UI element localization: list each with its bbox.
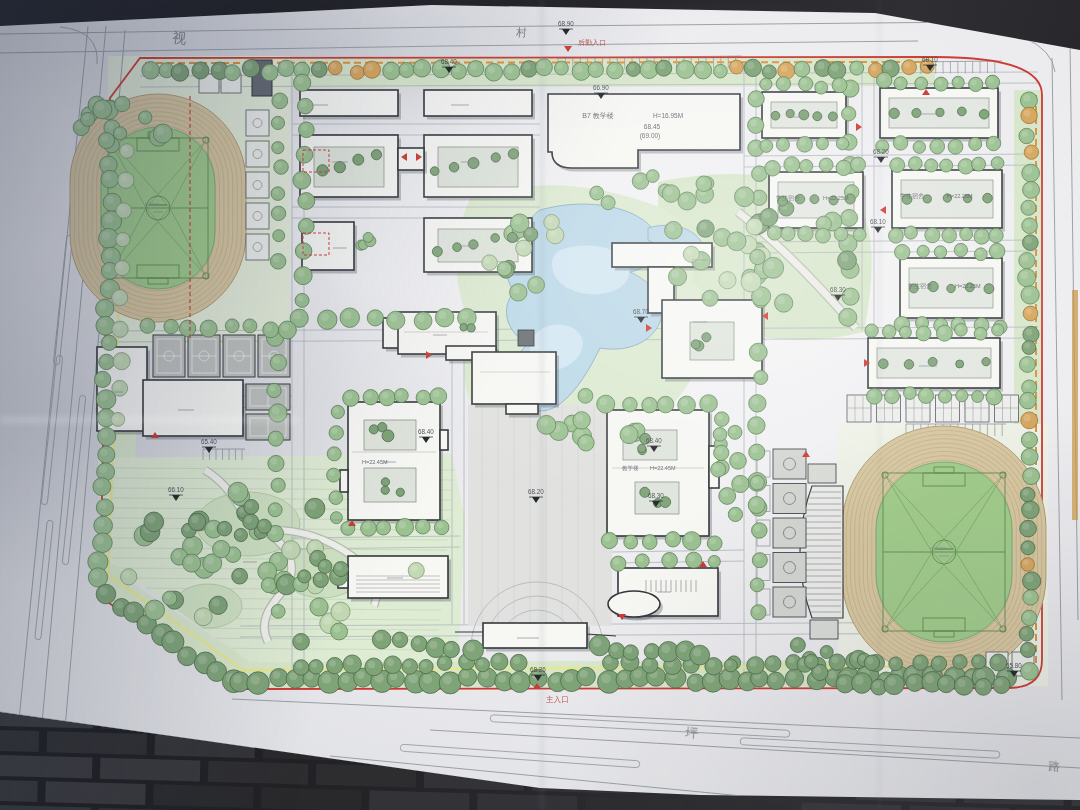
grandstand: [800, 464, 843, 639]
svg-text:66.10: 66.10: [168, 486, 184, 493]
building-b7-label: B7 教学楼: [582, 112, 614, 120]
svg-text:66.90: 66.90: [593, 84, 609, 91]
building-library-block: [472, 352, 556, 404]
main-entrance-label: 主入口: [546, 695, 569, 704]
svg-text:68.10: 68.10: [922, 56, 938, 63]
dorm-row2-east-height: H=22.25M: [947, 193, 973, 199]
road-label-left: 视: [172, 29, 188, 47]
site-plan-paper: 68.9066.9068.4068.1068.2068.1068.3068.70…: [0, 0, 1080, 810]
dorm-row2-west-label: 学生宿舍: [776, 194, 800, 202]
svg-text:68.40: 68.40: [418, 428, 434, 435]
svg-text:68.20: 68.20: [873, 148, 889, 155]
spot-elevation: 65.40: [201, 438, 217, 453]
teach-southwest-height: H=22.45M: [362, 459, 388, 465]
spot-elevation: 68.90: [558, 20, 574, 35]
building-connector: [398, 148, 424, 170]
svg-text:65.40: 65.40: [201, 438, 217, 445]
photo-of-campus-site-plan: 68.9066.9068.4068.1068.2068.1068.3068.70…: [0, 0, 1080, 810]
entrance-marker: [856, 123, 862, 131]
svg-text:68.26: 68.26: [530, 666, 546, 673]
dorm-row3-east-height: H=22.25M: [955, 283, 981, 289]
building-library-block: [506, 404, 538, 414]
svg-text:68.40: 68.40: [646, 437, 662, 444]
dorm-row2-west-height: H=22.25M: [823, 195, 849, 201]
building-lecture-oval: [608, 591, 660, 617]
teach-southeast-label: 教学楼: [622, 465, 639, 472]
svg-text:68.40: 68.40: [441, 58, 457, 65]
building-gym-2: [143, 380, 243, 436]
building-b7-elev-alt: (69.00): [640, 132, 661, 140]
dorm-row3-east-label: 学生宿舍: [908, 282, 932, 290]
svg-text:65.80: 65.80: [1006, 662, 1022, 669]
road-label-bottom: 坪: [684, 725, 699, 741]
road-label-top: 村: [516, 26, 527, 38]
dorm-row2-east-label: 学生宿舍: [900, 192, 924, 200]
svg-text:68.20: 68.20: [528, 488, 544, 495]
building-b7-elev: 68.45: [644, 123, 661, 130]
svg-text:68.10: 68.10: [870, 218, 886, 225]
teach-southeast-height: H=22.45M: [650, 465, 676, 471]
building-bar-b: [424, 90, 532, 116]
building-main-gate: [483, 623, 587, 648]
svg-text:68.70: 68.70: [633, 308, 649, 315]
svg-text:68.30: 68.30: [830, 286, 846, 293]
building-b7-height: H=16.95M: [653, 112, 683, 119]
entrance-marker: [880, 206, 886, 214]
spot-elevation: 68.10: [870, 218, 886, 233]
entrance-marker: [564, 46, 572, 52]
building-b7: [548, 94, 740, 168]
athletics-track-southeast: [842, 426, 1046, 678]
building-bar-a: [300, 90, 398, 116]
svg-text:68.90: 68.90: [558, 20, 574, 27]
svg-text:68.30: 68.30: [648, 492, 664, 499]
road-label-bottom-right: 路: [1048, 759, 1061, 774]
service-entrance-label: 后勤入口: [578, 39, 606, 47]
